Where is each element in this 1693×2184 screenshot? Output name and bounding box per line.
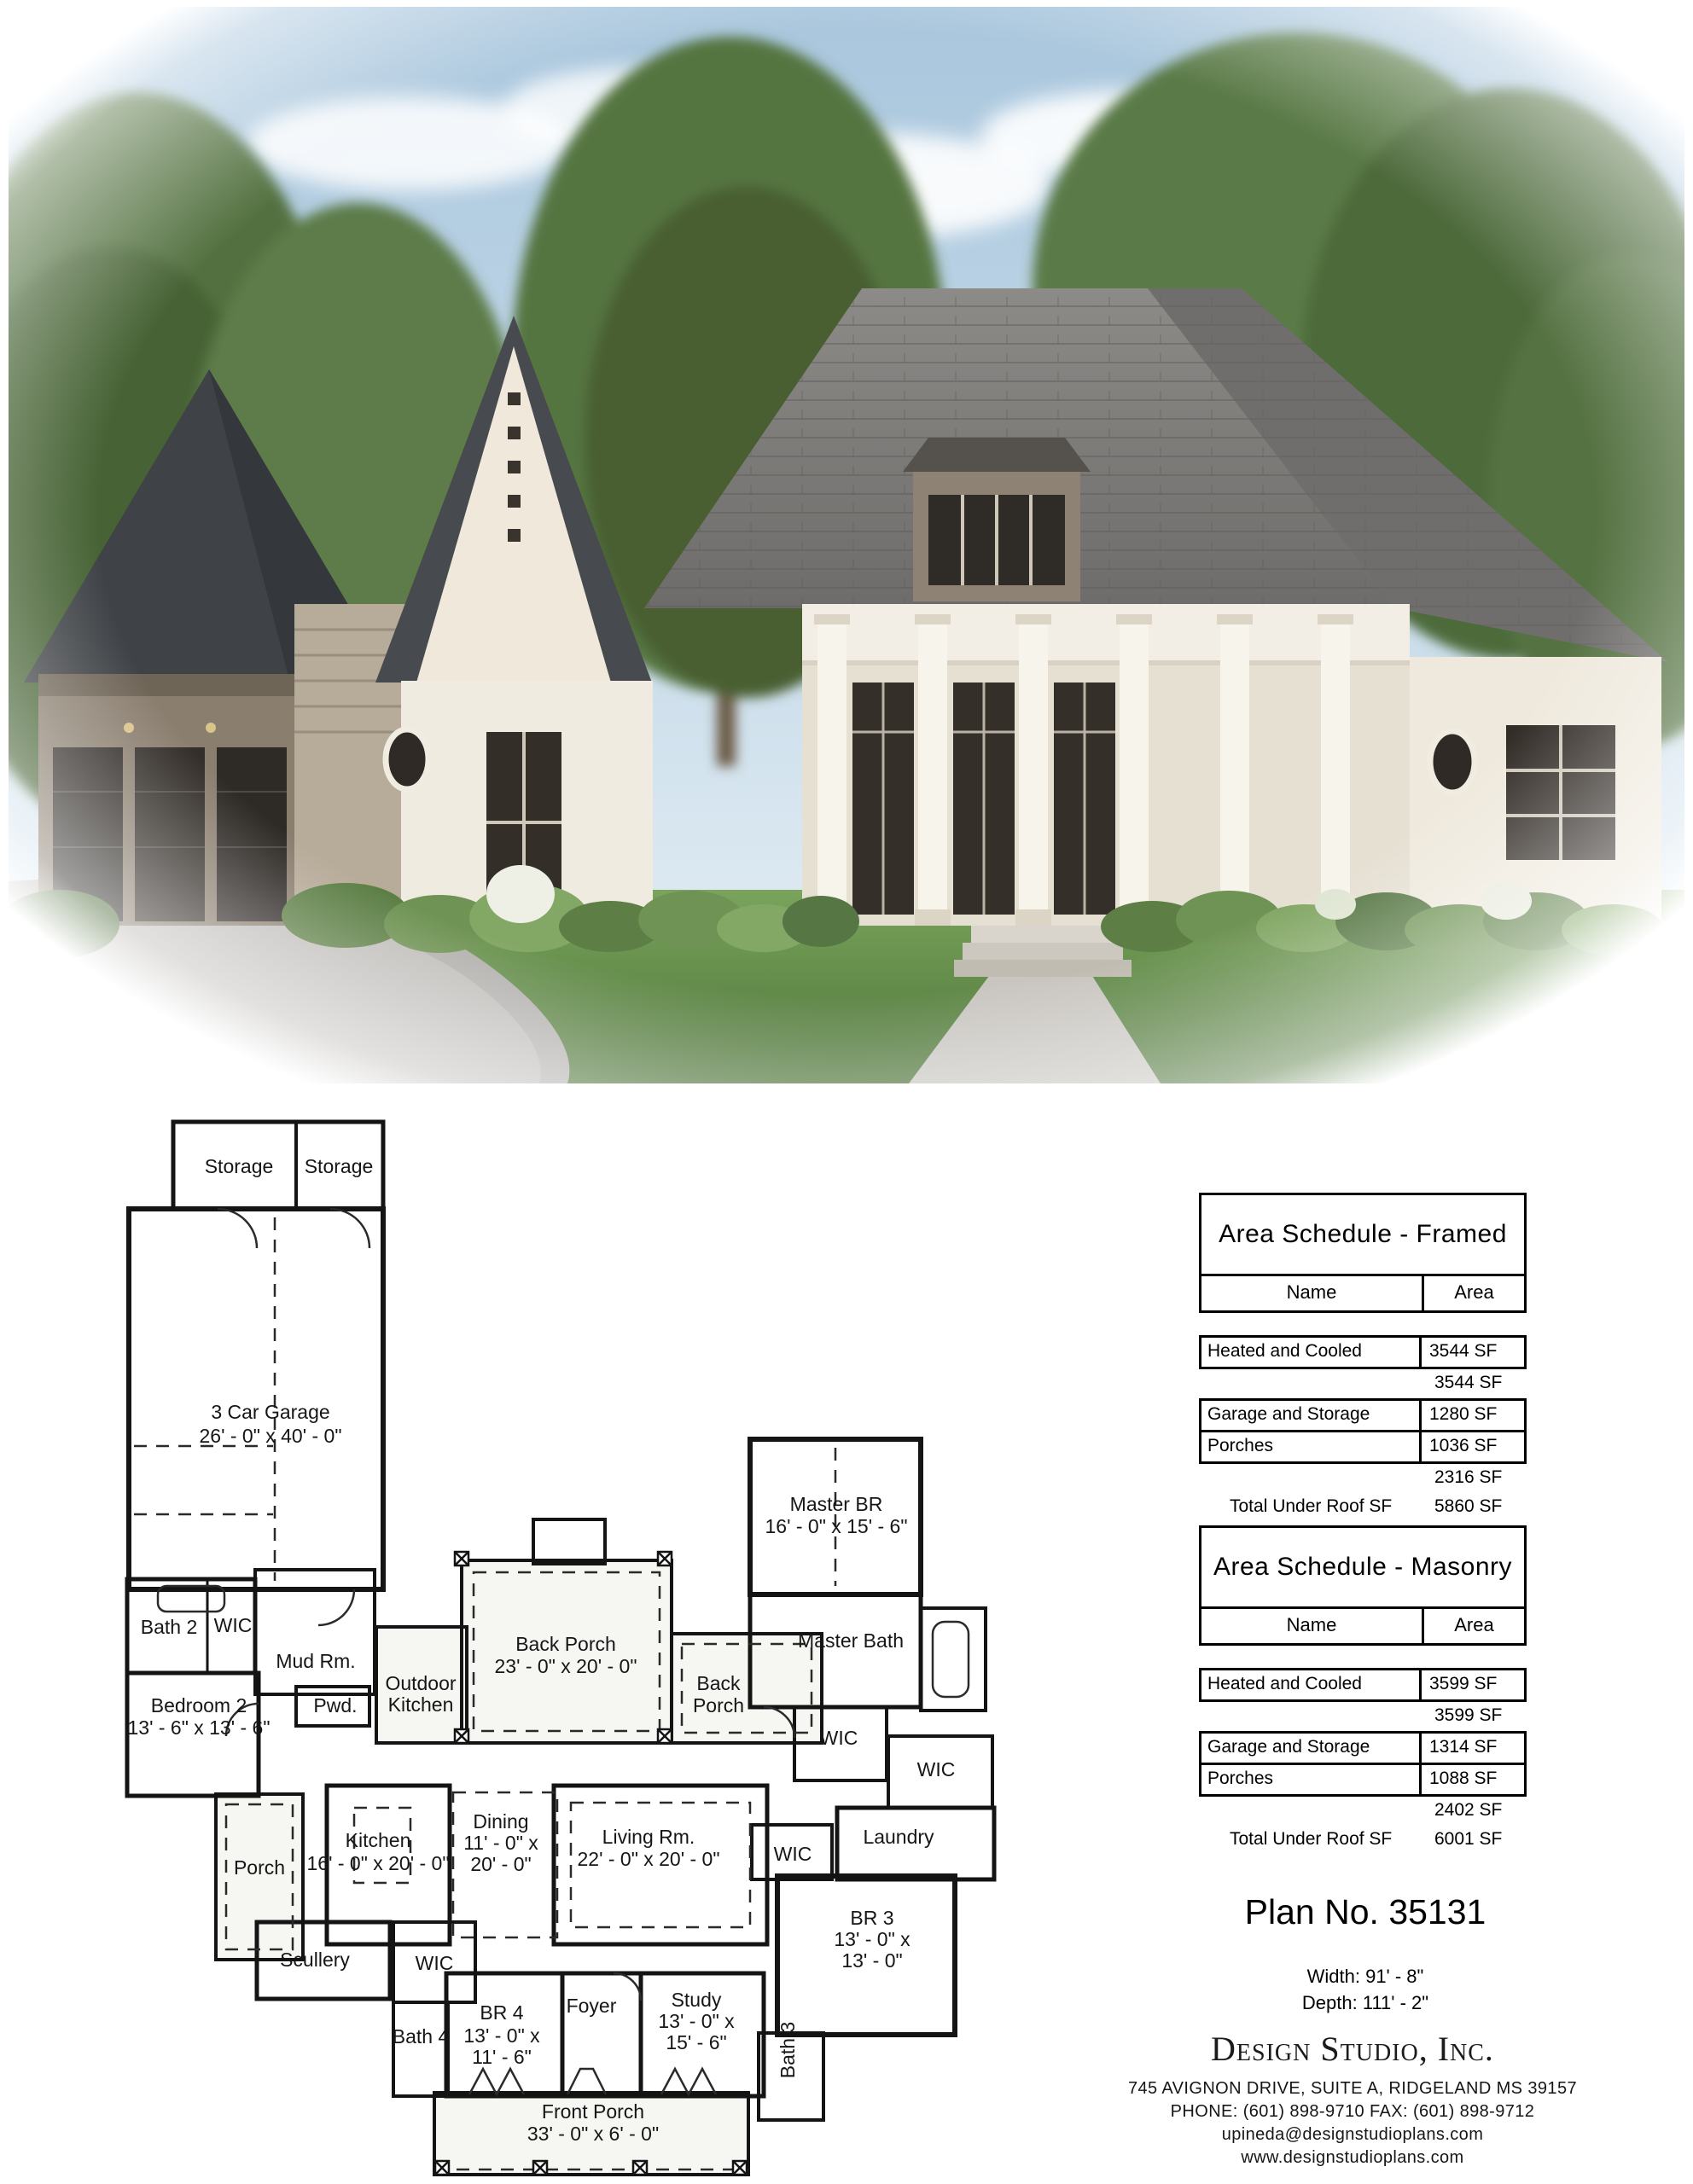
room-label: Storage — [205, 1155, 274, 1177]
room-dims: 16' - 0" x 20' - 0" — [306, 1852, 449, 1874]
row-name: Heated and Cooled — [1201, 1338, 1422, 1367]
room-label: Bath 3 — [777, 2022, 799, 2079]
room-label: Porch — [693, 1694, 744, 1716]
room-label: WIC — [214, 1614, 253, 1636]
room-dims: 13' - 0" — [841, 1949, 902, 1972]
area-schedule-masonry: Area Schedule - Masonry Name Area Heated… — [1199, 1525, 1527, 1855]
row-area: 3599 SF — [1419, 1702, 1527, 1731]
row-area: 3599 SF — [1422, 1670, 1524, 1699]
room-label: Dining — [473, 1810, 528, 1833]
row-name: Garage and Storage — [1201, 1734, 1422, 1763]
table-subtotal-row: 3544 SF — [1199, 1369, 1527, 1398]
room-label: Pwd. — [313, 1694, 357, 1716]
room-dims: 26' - 0" x 40' - 0" — [199, 1425, 341, 1447]
table-row: Heated and Cooled 3544 SF — [1199, 1335, 1527, 1369]
table-row: Garage and Storage 1280 SF — [1199, 1398, 1527, 1432]
room-label: Foyer — [567, 1995, 617, 2017]
room-label: WIC — [774, 1843, 812, 1865]
row-name: Total Under Roof SF — [1199, 1826, 1419, 1855]
room-label: Outdoor — [385, 1672, 456, 1694]
row-name: Garage and Storage — [1201, 1401, 1422, 1430]
column-header-area: Area — [1424, 1609, 1524, 1643]
row-area: 1036 SF — [1422, 1432, 1524, 1461]
room-label: Storage — [305, 1155, 374, 1177]
row-area: 3544 SF — [1419, 1369, 1527, 1398]
row-area: 1280 SF — [1422, 1401, 1524, 1430]
table-row: Garage and Storage 1314 SF — [1199, 1731, 1527, 1765]
row-name — [1199, 1464, 1419, 1493]
row-area: 6001 SF — [1419, 1826, 1527, 1855]
table-title: Area Schedule - Masonry — [1199, 1525, 1527, 1609]
room-label: Master Bath — [798, 1629, 904, 1652]
table-header-row: Name Area — [1199, 1609, 1527, 1646]
room-dims: 15' - 6" — [666, 2031, 726, 2053]
room-label: Kitchen — [346, 1829, 411, 1851]
row-area: 5860 SF — [1419, 1493, 1527, 1522]
row-area: 2402 SF — [1419, 1797, 1527, 1826]
room-label: Back — [696, 1672, 741, 1694]
company-email: upineda@designstudioplans.com — [1125, 2123, 1580, 2146]
room-label: BR 4 — [480, 2001, 523, 2024]
row-area: 2316 SF — [1419, 1464, 1527, 1493]
room-dims: 13' - 0" x — [463, 2024, 540, 2047]
table-row: Heated and Cooled 3599 SF — [1199, 1668, 1527, 1702]
plan-depth: Depth: 111' - 2" — [1199, 1989, 1532, 2016]
room-label: 3 Car Garage — [211, 1401, 329, 1423]
room-label: WIC — [917, 1758, 956, 1780]
room-label: Master BR — [790, 1493, 883, 1515]
floor-plan: Storage Storage 3 Car Garage 26' - 0" x … — [73, 1105, 998, 2184]
room-dims: 11' - 6" — [472, 2046, 532, 2068]
room-label: Study — [672, 1989, 722, 2011]
table-row: Porches 1036 SF — [1199, 1430, 1527, 1464]
room-dims: 23' - 0" x 20' - 0" — [494, 1655, 637, 1677]
room-label: Kitchen — [388, 1693, 454, 1716]
room-label: Bath 4 — [393, 2025, 450, 2047]
plan-info-block: Plan No. 35131 Width: 91' - 8" Depth: 11… — [1199, 1892, 1532, 2016]
company-name: Design Studio, Inc. — [1125, 2029, 1580, 2069]
row-name — [1199, 1797, 1419, 1826]
table-subtotal-row: 2316 SF — [1199, 1464, 1527, 1493]
room-label: Living Rm. — [602, 1826, 695, 1848]
row-name: Porches — [1201, 1765, 1422, 1794]
room-label: Back Porch — [515, 1633, 616, 1655]
room-dims: 33' - 0" x 6' - 0" — [527, 2123, 659, 2145]
room-label: Porch — [234, 1856, 285, 1879]
room-dims: 11' - 0" x — [463, 1832, 538, 1854]
room-dims: 13' - 0" x — [658, 2010, 735, 2032]
plan-width: Width: 91' - 8" — [1199, 1963, 1532, 1989]
room-dims: 13' - 0" x — [834, 1928, 910, 1950]
room-label: Mud Rm. — [276, 1650, 355, 1672]
room-dims: 16' - 0" x 15' - 6" — [765, 1515, 907, 1537]
room-label: BR 3 — [850, 1907, 893, 1929]
room-label: WIC — [820, 1727, 858, 1749]
room-label: Scullery — [280, 1949, 350, 1971]
room-label: Laundry — [863, 1826, 934, 1848]
table-row: Porches 1088 SF — [1199, 1763, 1527, 1797]
table-title: Area Schedule - Framed — [1199, 1193, 1527, 1276]
table-total-row: Total Under Roof SF 6001 SF — [1199, 1826, 1527, 1855]
area-schedule-framed: Area Schedule - Framed Name Area Heated … — [1199, 1193, 1527, 1522]
table-subtotal-row: 3599 SF — [1199, 1702, 1527, 1731]
room-label: WIC — [416, 1952, 454, 1974]
room-dims: 22' - 0" x 20' - 0" — [577, 1848, 719, 1870]
company-address: 745 AVIGNON DRIVE, SUITE A, RIDGELAND MS… — [1125, 2077, 1580, 2100]
company-block: Design Studio, Inc. 745 AVIGNON DRIVE, S… — [1125, 2029, 1580, 2169]
plan-number: Plan No. 35131 — [1199, 1892, 1532, 1932]
company-website: www.designstudioplans.com — [1125, 2146, 1580, 2169]
table-total-row: Total Under Roof SF 5860 SF — [1199, 1493, 1527, 1522]
room-dims: 20' - 0" — [470, 1853, 531, 1875]
room-label: Front Porch — [542, 2100, 644, 2123]
row-area: 1314 SF — [1422, 1734, 1524, 1763]
column-header-name: Name — [1201, 1609, 1424, 1643]
row-name — [1199, 1369, 1419, 1398]
room-dims: 13' - 6" x 13' - 6" — [127, 1716, 270, 1739]
row-name: Porches — [1201, 1432, 1422, 1461]
column-header-name: Name — [1201, 1276, 1424, 1310]
plan-room-labels: Storage Storage 3 Car Garage 26' - 0" x … — [127, 1155, 955, 2145]
room-label: Bath 2 — [141, 1616, 198, 1638]
row-name: Heated and Cooled — [1201, 1670, 1422, 1699]
photo-vignette — [9, 7, 1684, 1083]
column-header-area: Area — [1424, 1276, 1524, 1310]
row-area: 1088 SF — [1422, 1765, 1524, 1794]
row-name: Total Under Roof SF — [1199, 1493, 1419, 1522]
table-header-row: Name Area — [1199, 1276, 1527, 1313]
table-subtotal-row: 2402 SF — [1199, 1797, 1527, 1826]
room-label: Bedroom 2 — [151, 1694, 247, 1716]
row-area: 3544 SF — [1422, 1338, 1524, 1367]
row-name — [1199, 1702, 1419, 1731]
company-phone-fax: PHONE: (601) 898-9710 FAX: (601) 898-971… — [1125, 2100, 1580, 2123]
house-rendering-photo — [9, 7, 1684, 1083]
